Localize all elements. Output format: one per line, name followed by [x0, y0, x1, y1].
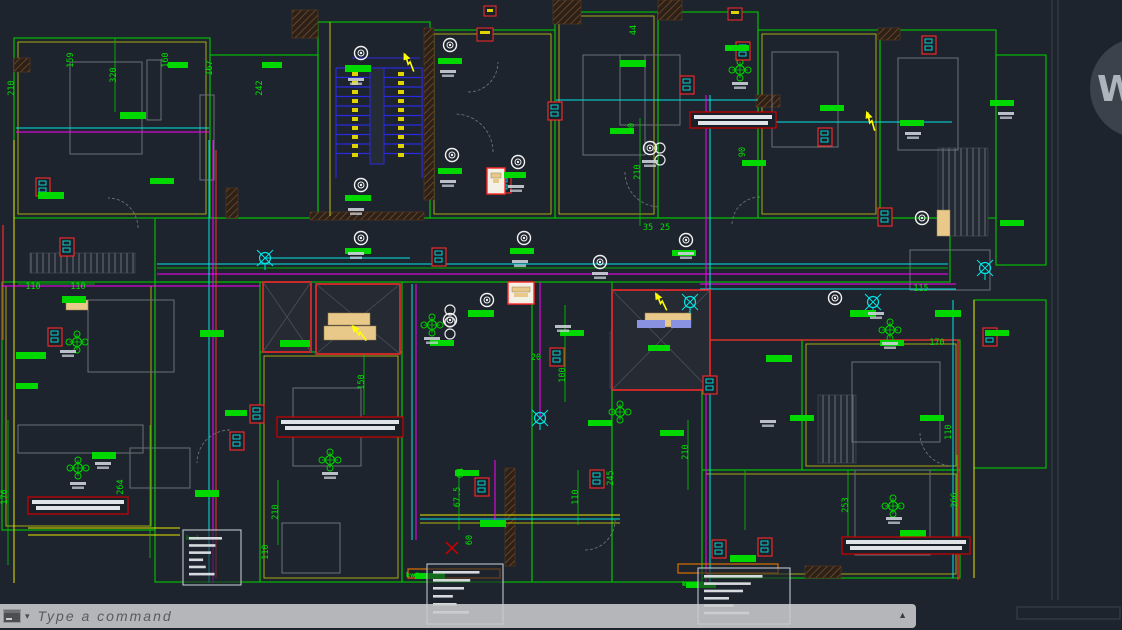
- legend-line: [433, 587, 464, 590]
- stair-dash: [352, 99, 358, 103]
- stair-dash: [352, 144, 358, 148]
- label-highlight: [38, 192, 64, 199]
- label-highlight: [195, 490, 219, 497]
- dimension-text: 35: [643, 223, 653, 233]
- stair-dash: [398, 72, 404, 76]
- legend-line: [189, 551, 211, 554]
- wall-hatch: [878, 28, 900, 40]
- dimension-text: 64: [456, 468, 466, 478]
- expand-command-history-icon[interactable]: ▲: [898, 611, 907, 620]
- equipment-block: [324, 326, 376, 340]
- wall-hatch: [424, 28, 434, 200]
- wall-hatch: [226, 188, 238, 218]
- label-highlight: [468, 310, 494, 317]
- watermark-letter: W: [1097, 69, 1122, 110]
- stair-dash: [398, 117, 404, 121]
- command-bar[interactable]: ▾ Type a command ▲: [0, 604, 916, 628]
- label-highlight: [480, 520, 506, 527]
- wall-hatch: [292, 10, 318, 38]
- dimension-text: 253: [841, 497, 851, 512]
- label-highlight: [92, 452, 116, 459]
- dimension-text: 210: [7, 80, 17, 95]
- wall-hatch: [805, 566, 841, 578]
- stair-dash: [352, 117, 358, 121]
- wall-hatch: [310, 212, 424, 220]
- stair-dash: [398, 108, 404, 112]
- label-highlight: [345, 65, 371, 72]
- commandline-icon[interactable]: [3, 609, 21, 623]
- legend-line: [704, 597, 729, 600]
- stair-dash: [352, 126, 358, 130]
- label-highlight: [790, 415, 814, 421]
- legend-line: [189, 537, 222, 540]
- label-highlight: [16, 352, 46, 359]
- label-highlight: [438, 58, 462, 64]
- label-highlight: [345, 195, 371, 201]
- dimension-text: 266: [950, 492, 960, 507]
- stair-divider: [370, 68, 384, 164]
- stair-dash: [352, 135, 358, 139]
- command-input[interactable]: Type a command: [38, 608, 173, 624]
- stair-dash: [352, 108, 358, 112]
- dimension-text: 264: [116, 479, 126, 494]
- dimension-text: 150: [357, 374, 367, 389]
- label-highlight: [742, 160, 766, 166]
- stair-dash: [352, 72, 358, 76]
- label-highlight: [985, 330, 1009, 336]
- stair-dash: [398, 90, 404, 94]
- legend-line: [189, 566, 206, 569]
- legend-box: kw2: [406, 572, 420, 579]
- dimension-text: 90: [738, 147, 748, 157]
- legend-label: kw2: [406, 572, 420, 579]
- label-highlight: [660, 430, 684, 436]
- dimension-text: 245: [606, 470, 616, 485]
- legend-line: [704, 575, 763, 578]
- dimension-text: 110: [571, 489, 581, 504]
- label-highlight: [510, 248, 534, 254]
- wall-hatch: [553, 0, 581, 24]
- stair-dash: [398, 135, 404, 139]
- stair-dash: [352, 90, 358, 94]
- hatched-area: [30, 253, 135, 273]
- label-highlight: [1000, 220, 1024, 226]
- wall-hatch: [756, 95, 780, 107]
- legend-line: [189, 573, 215, 576]
- drawing-canvas[interactable]: 1101101151701503201592102421671602104420…: [0, 0, 1122, 630]
- label-highlight: [504, 172, 526, 178]
- label-highlight: [120, 112, 146, 119]
- hatched-area: [818, 395, 856, 463]
- label-highlight: [620, 60, 646, 67]
- label-highlight: [225, 410, 247, 416]
- legend-line: [189, 559, 203, 562]
- label-highlight: [935, 310, 961, 317]
- dimension-text: 110: [25, 282, 40, 292]
- stair-dash: [398, 99, 404, 103]
- label-highlight: [725, 45, 749, 51]
- dimension-text: 210: [633, 164, 643, 179]
- legend-line: [189, 544, 215, 547]
- dimension-text: 44: [629, 25, 639, 35]
- application-window: 1101101151701503201592102421671602104420…: [0, 0, 1122, 630]
- dimension-text: 167: [205, 60, 215, 75]
- dimension-text: 242: [255, 80, 265, 95]
- legend-box: kw3: [682, 581, 696, 588]
- stair-dash: [398, 126, 404, 130]
- recent-commands-caret-icon[interactable]: ▾: [25, 611, 30, 622]
- label-highlight: [990, 100, 1014, 106]
- dimension-text: 110: [261, 544, 271, 559]
- dimension-text: 176: [0, 489, 10, 504]
- stair-dash: [398, 81, 404, 85]
- wall-hatch: [14, 58, 30, 72]
- stair-dash: [398, 144, 404, 148]
- dimension-text: 67.5: [453, 487, 463, 507]
- dimension-text: 110: [70, 282, 85, 292]
- dimension-text: 320: [109, 67, 119, 82]
- label-highlight: [62, 296, 86, 303]
- legend-line: [433, 571, 480, 574]
- label-highlight: [16, 383, 38, 389]
- label-highlight: [900, 530, 926, 537]
- equipment-block: [328, 313, 370, 325]
- dimension-text: 160: [161, 52, 171, 67]
- label-highlight: [168, 62, 188, 68]
- dimension-text: 115: [913, 284, 928, 294]
- equipment-block: [937, 210, 950, 236]
- dimension-text: 25: [660, 223, 670, 233]
- label-highlight: [820, 105, 844, 111]
- dimension-text: 20: [627, 123, 637, 133]
- legend-line: [704, 582, 751, 585]
- label-highlight: [648, 345, 670, 351]
- dimension-text: 170: [929, 338, 944, 348]
- equipment-bar: [637, 320, 665, 328]
- wall-hatch: [505, 468, 515, 566]
- dimension-text: 100: [558, 367, 568, 382]
- dimension-text: 20: [531, 353, 541, 363]
- dimension-text: 110: [944, 424, 954, 439]
- legend-line: [433, 579, 470, 582]
- stair-dash: [398, 153, 404, 157]
- equipment-bar: [671, 320, 691, 328]
- label-highlight: [280, 340, 310, 347]
- label-highlight: [730, 555, 756, 562]
- label-highlight: [438, 168, 462, 174]
- label-highlight: [150, 178, 174, 184]
- legend-line: [433, 595, 453, 598]
- wall-hatch: [658, 0, 682, 20]
- legend-label: kw3: [682, 581, 696, 588]
- label-highlight: [920, 415, 944, 421]
- dimension-text: 210: [681, 444, 691, 459]
- label-highlight: [262, 62, 282, 68]
- label-highlight: [200, 330, 224, 337]
- label-highlight: [588, 420, 612, 426]
- dimension-text: 159: [66, 52, 76, 67]
- label-highlight: [766, 355, 792, 362]
- legend-line: [704, 590, 743, 593]
- stair-dash: [352, 153, 358, 157]
- dimension-text: 210: [271, 504, 281, 519]
- dimension-text: 60: [465, 535, 475, 545]
- label-highlight: [900, 120, 924, 126]
